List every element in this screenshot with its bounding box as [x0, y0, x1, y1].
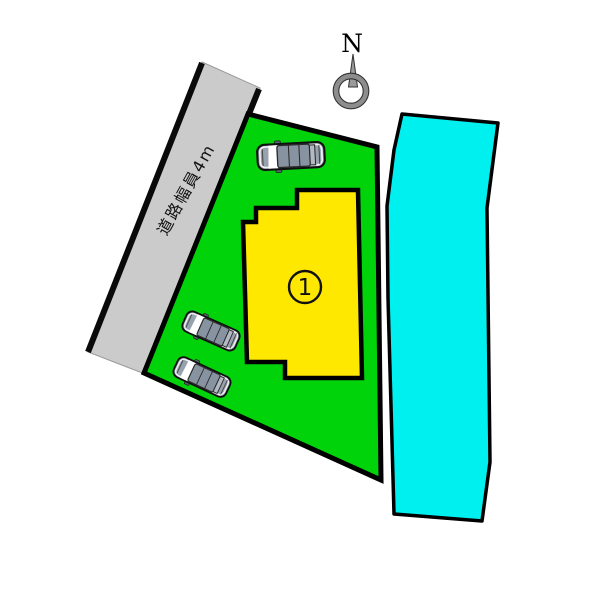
car-icon: [257, 139, 326, 174]
side-road-area: [387, 114, 498, 521]
north-label: N: [341, 29, 363, 58]
site-plan-canvas: 1 道路幅員4m N: [0, 0, 600, 600]
site-plan-drawing: 1 道路幅員4m N: [0, 0, 600, 600]
compass: N: [333, 29, 369, 109]
compass-needle-icon: [349, 54, 358, 87]
lot-number-label: 1: [298, 275, 313, 301]
